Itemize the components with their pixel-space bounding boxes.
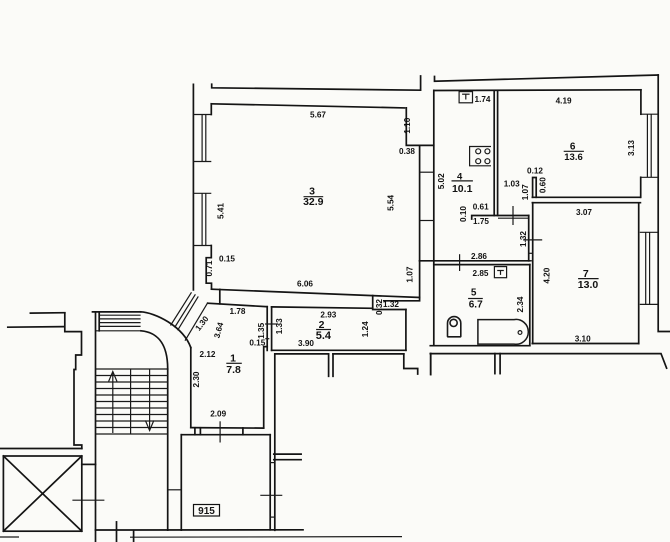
svg-text:0.60: 0.60 [538,177,547,193]
svg-text:10.1: 10.1 [452,183,473,195]
svg-text:1.10: 1.10 [403,117,412,133]
svg-text:3.13: 3.13 [627,140,636,156]
svg-text:3.07: 3.07 [576,208,592,217]
svg-text:2.93: 2.93 [320,310,336,319]
svg-text:4.19: 4.19 [556,97,572,106]
svg-text:13.0: 13.0 [578,279,599,291]
svg-text:915: 915 [198,506,215,517]
svg-text:1.32: 1.32 [519,231,528,247]
svg-text:6.06: 6.06 [297,280,313,289]
svg-text:2.34: 2.34 [516,296,525,312]
svg-text:0.15: 0.15 [219,254,235,263]
svg-text:7.8: 7.8 [226,364,241,376]
svg-text:3.90: 3.90 [298,339,314,348]
svg-text:2.09: 2.09 [210,410,226,419]
svg-text:3.10: 3.10 [575,335,591,344]
svg-text:0.38: 0.38 [399,147,415,156]
svg-text:4.20: 4.20 [543,267,552,283]
svg-text:2.86: 2.86 [471,252,487,261]
svg-text:0.32: 0.32 [375,299,384,315]
svg-text:1.78: 1.78 [230,307,246,316]
svg-text:6.7: 6.7 [469,300,483,311]
svg-text:5.02: 5.02 [437,173,446,189]
svg-text:2.30: 2.30 [192,371,201,387]
svg-text:1.75: 1.75 [473,217,489,226]
svg-text:1.74: 1.74 [475,95,491,104]
svg-text:1.32: 1.32 [383,300,399,309]
svg-text:0.12: 0.12 [527,167,543,176]
svg-text:0.10: 0.10 [459,206,468,222]
svg-text:5.41: 5.41 [217,203,226,219]
svg-text:1.33: 1.33 [275,318,284,334]
svg-text:2.85: 2.85 [473,269,489,278]
svg-text:32.9: 32.9 [303,196,324,208]
svg-text:13.6: 13.6 [564,152,583,163]
svg-text:2.12: 2.12 [200,350,216,359]
svg-text:0.61: 0.61 [473,203,489,212]
svg-text:0.71: 0.71 [205,260,214,276]
svg-text:5.67: 5.67 [310,111,326,120]
svg-text:1.03: 1.03 [504,180,520,189]
svg-text:1.24: 1.24 [361,321,370,337]
svg-text:1.07: 1.07 [521,184,530,200]
svg-text:5.54: 5.54 [386,194,395,210]
svg-text:1.07: 1.07 [406,266,415,282]
svg-text:1.35: 1.35 [257,322,266,338]
svg-text:5: 5 [471,287,477,298]
svg-text:5.4: 5.4 [316,330,332,342]
